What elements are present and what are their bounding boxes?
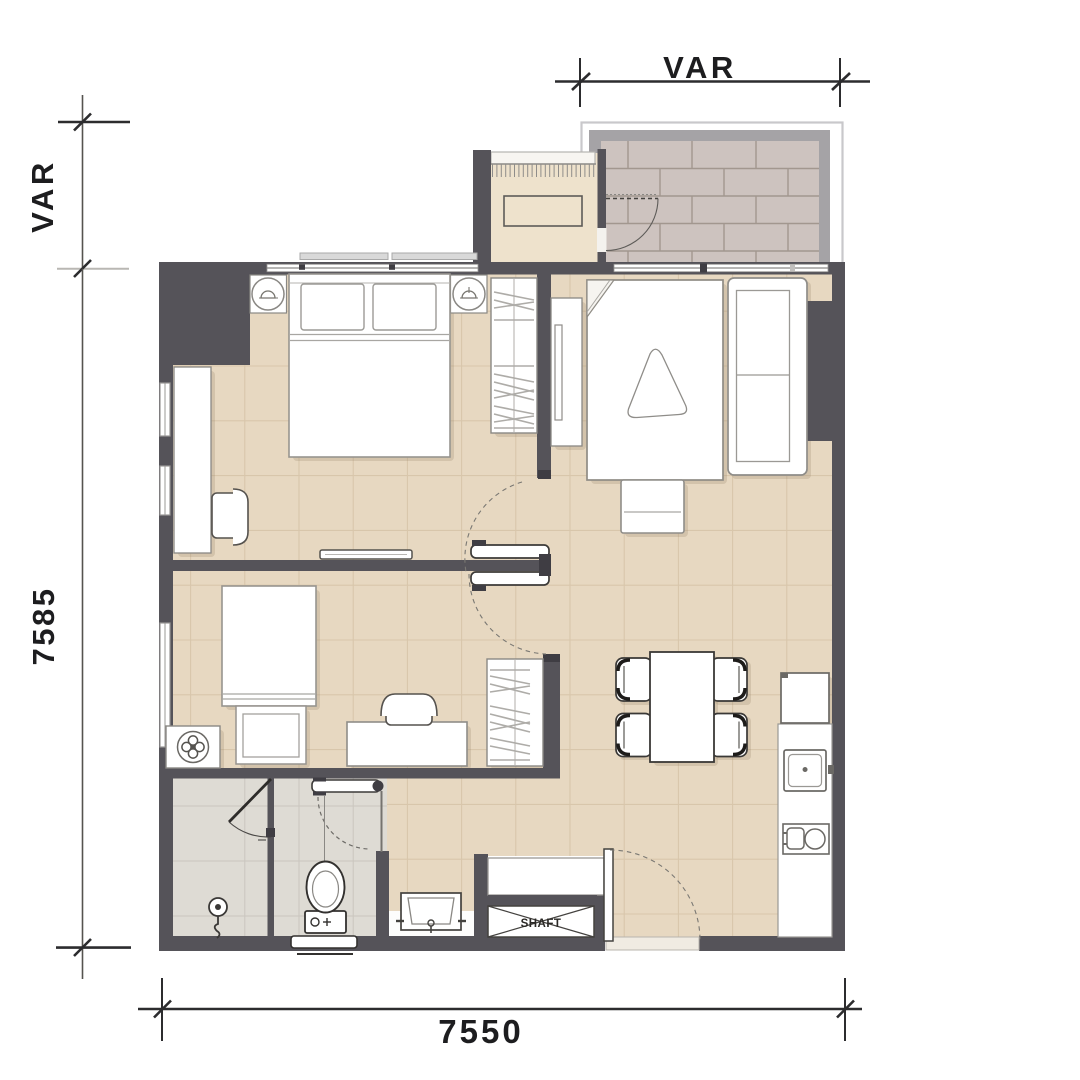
svg-text:SHAFT: SHAFT — [521, 918, 562, 930]
svg-text:VAR: VAR — [25, 159, 60, 233]
svg-text:7550: 7550 — [438, 1013, 523, 1050]
svg-text:7585: 7585 — [26, 587, 61, 666]
svg-text:VAR: VAR — [663, 50, 737, 85]
